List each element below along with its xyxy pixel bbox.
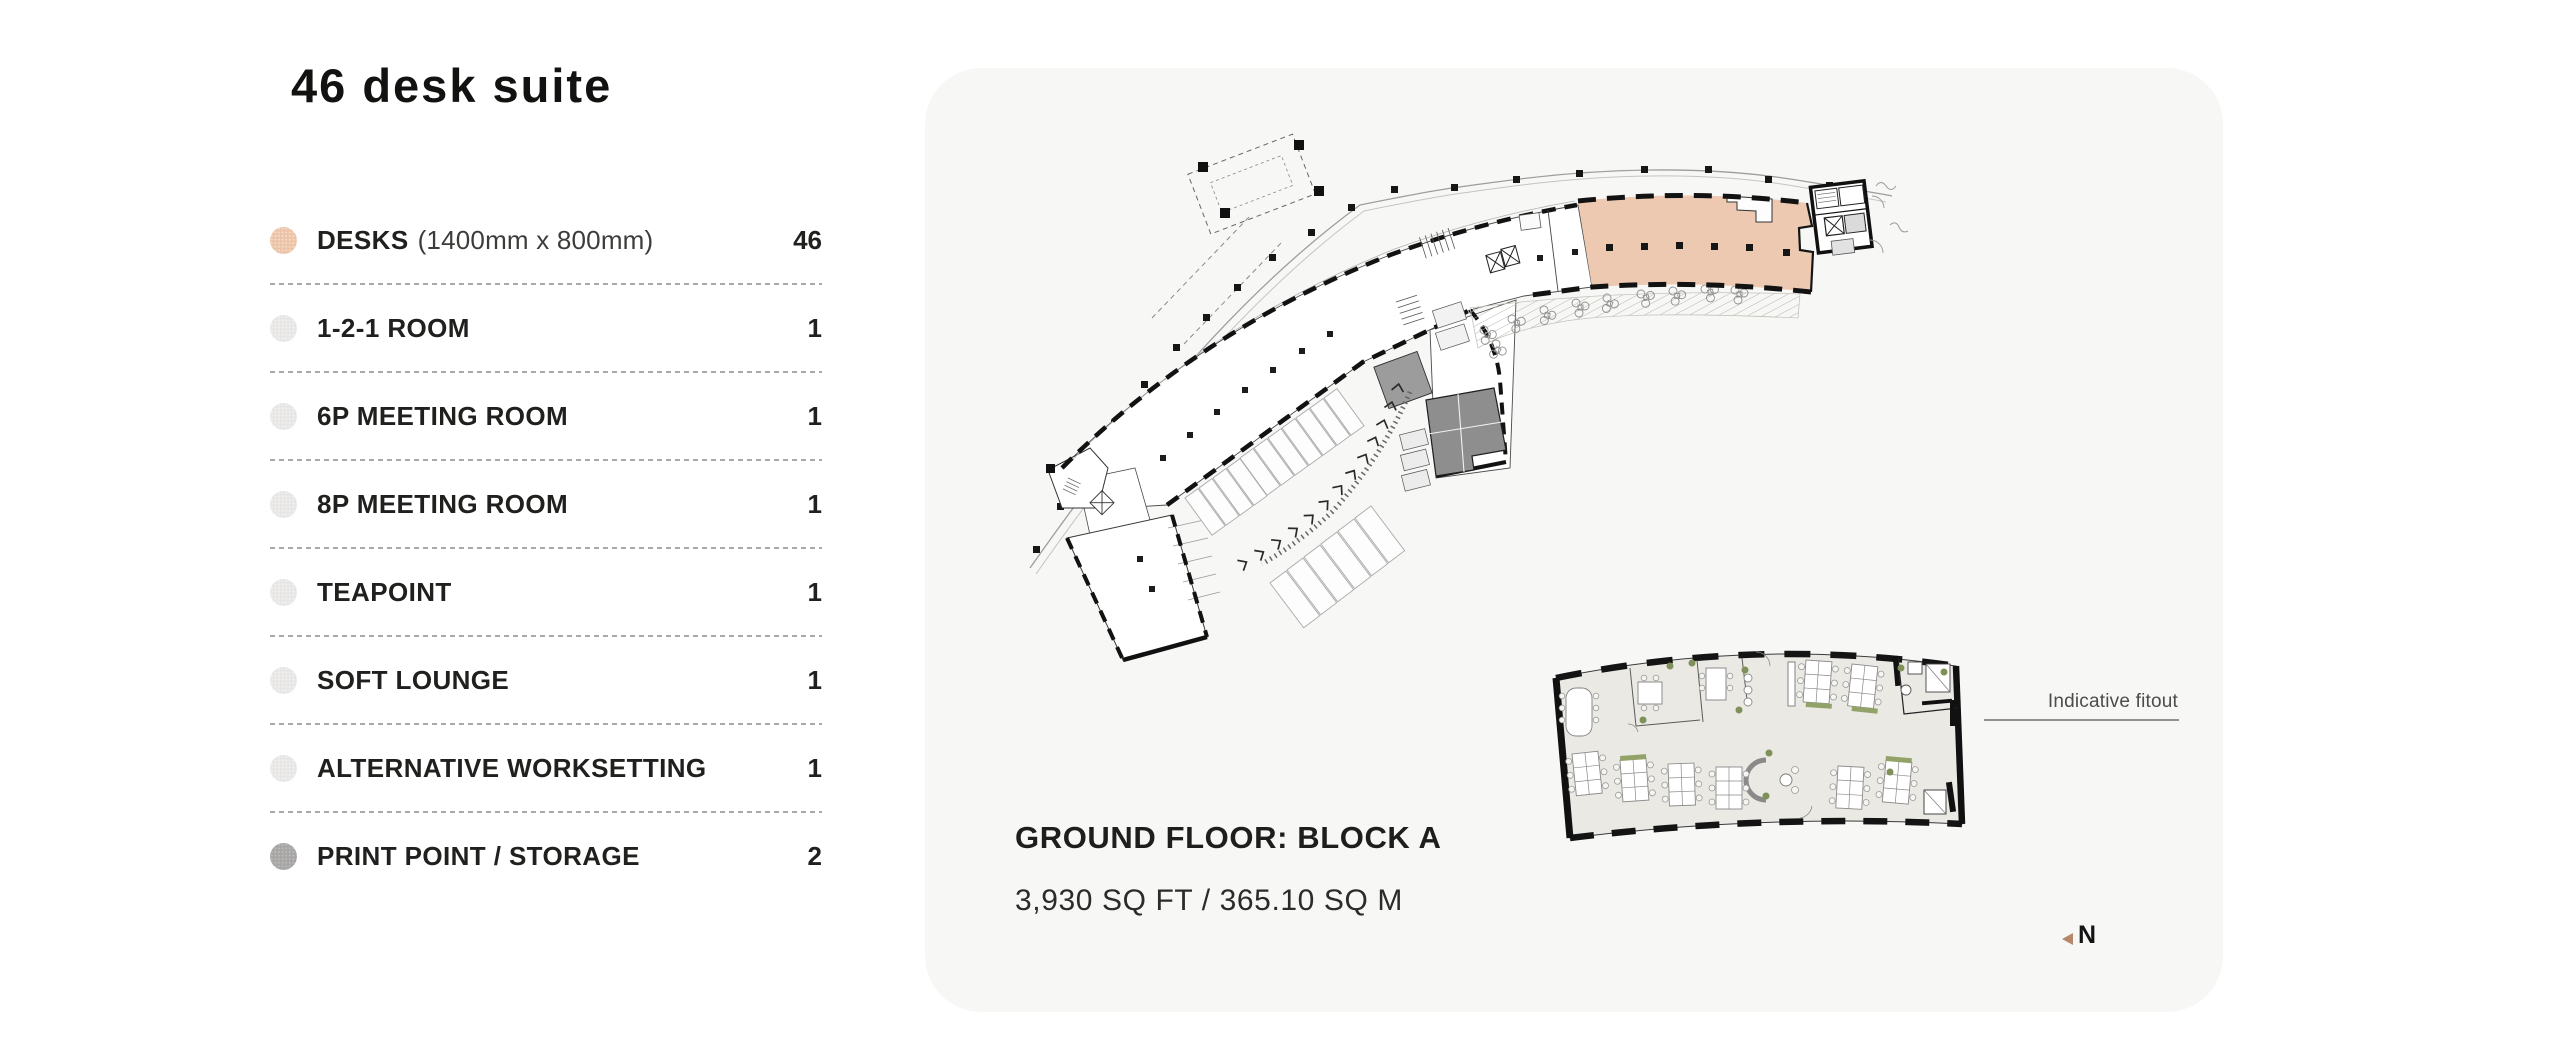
page-title: 46 desk suite bbox=[291, 58, 612, 113]
room-color-dot bbox=[270, 579, 297, 606]
indicative-fitout-note: Indicative fitout bbox=[1980, 691, 2178, 713]
fitout-rule bbox=[1984, 719, 2179, 721]
legend-row-121-room: 1-2-1 ROOM 1 bbox=[270, 284, 822, 372]
legend-row-alt-worksetting: ALTERNATIVE WORKSETTING 1 bbox=[270, 724, 822, 812]
legend-count: 1 bbox=[808, 489, 822, 520]
legend-row-6p-meeting: 6P MEETING ROOM 1 bbox=[270, 372, 822, 460]
room-color-dot bbox=[270, 491, 297, 518]
print-storage-room-a bbox=[1374, 351, 1432, 408]
legend-label-detail: (1400mm x 800mm) bbox=[418, 225, 654, 256]
floor-plan-drawing bbox=[925, 68, 2223, 1012]
legend-count: 2 bbox=[808, 841, 822, 872]
legend-count: 1 bbox=[808, 665, 822, 696]
legend-label: PRINT POINT / STORAGE bbox=[317, 841, 640, 872]
room-color-dot bbox=[270, 403, 297, 430]
legend-row-8p-meeting: 8P MEETING ROOM 1 bbox=[270, 460, 822, 548]
legend-label: 6P MEETING ROOM bbox=[317, 401, 568, 432]
floor-title: GROUND FLOOR: BLOCK A bbox=[1015, 820, 1441, 856]
legend-label: 1-2-1 ROOM bbox=[317, 313, 470, 344]
legend-count: 1 bbox=[808, 577, 822, 608]
legend-label: SOFT LOUNGE bbox=[317, 665, 509, 696]
legend-count: 1 bbox=[808, 313, 822, 344]
legend-label: DESKS bbox=[317, 225, 409, 256]
legend-count: 1 bbox=[808, 401, 822, 432]
west-wing bbox=[1067, 515, 1220, 660]
entrance-canopy bbox=[1188, 134, 1324, 234]
legend-count: 1 bbox=[808, 753, 822, 784]
floor-area: 3,930 SQ FT / 365.10 SQ M bbox=[1015, 884, 1403, 918]
legend-count: 46 bbox=[793, 225, 822, 256]
legend-row-soft-lounge: SOFT LOUNGE 1 bbox=[270, 636, 822, 724]
north-indicator: N bbox=[2062, 921, 2097, 950]
storage-color-dot bbox=[270, 843, 297, 870]
legend-label: 8P MEETING ROOM bbox=[317, 489, 568, 520]
legend-label: TEAPOINT bbox=[317, 577, 452, 608]
east-stair-core bbox=[1810, 181, 1908, 257]
room-color-dot bbox=[270, 667, 297, 694]
room-color-dot bbox=[270, 755, 297, 782]
legend-row-teapoint: TEAPOINT 1 bbox=[270, 548, 822, 636]
legend-label: ALTERNATIVE WORKSETTING bbox=[317, 753, 707, 784]
legend: DESKS (1400mm x 800mm) 46 1-2-1 ROOM 1 6… bbox=[270, 196, 822, 900]
desks-color-dot bbox=[270, 227, 297, 254]
room-color-dot bbox=[270, 315, 297, 342]
legend-row-print-storage: PRINT POINT / STORAGE 2 bbox=[270, 812, 822, 900]
north-arrow-icon bbox=[2062, 933, 2073, 945]
north-label: N bbox=[2078, 921, 2097, 950]
legend-row-desks: DESKS (1400mm x 800mm) 46 bbox=[270, 196, 822, 284]
